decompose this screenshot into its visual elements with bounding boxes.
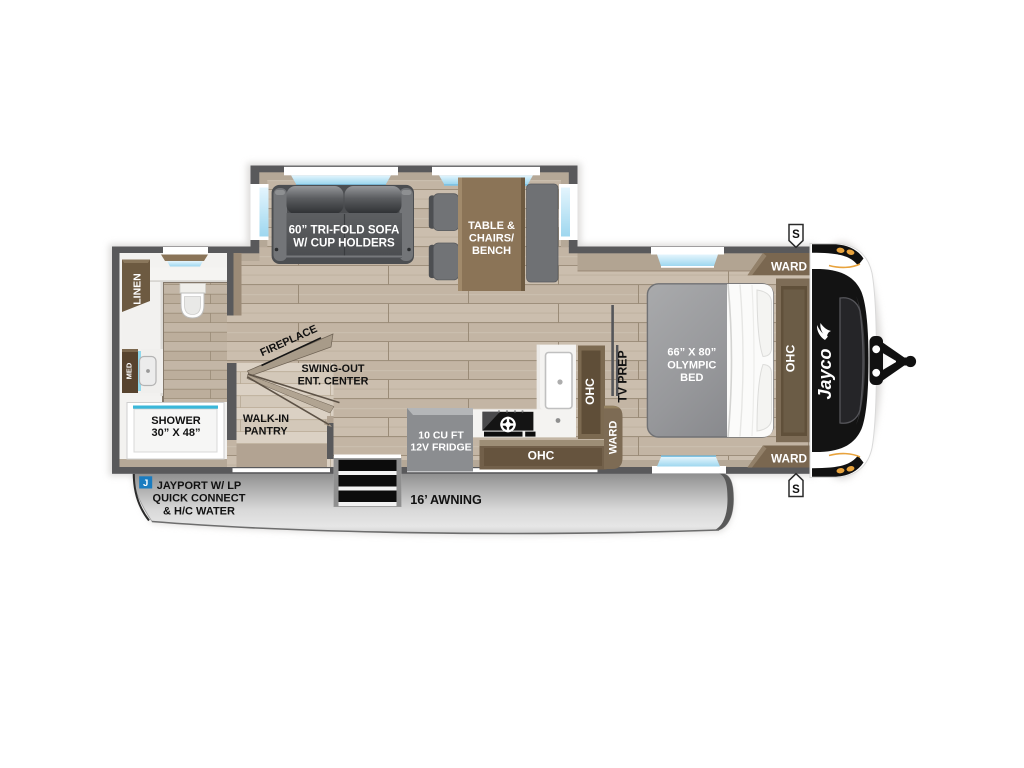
svg-text:PANTRY: PANTRY bbox=[244, 426, 288, 438]
svg-text:60” TRI-FOLD SOFA: 60” TRI-FOLD SOFA bbox=[289, 224, 400, 237]
svg-text:TABLE &: TABLE & bbox=[468, 220, 515, 232]
svg-text:30” X 48”: 30” X 48” bbox=[152, 427, 201, 439]
svg-text:OHC: OHC bbox=[528, 449, 555, 463]
svg-text:S: S bbox=[792, 229, 800, 241]
svg-text:Jayco: Jayco bbox=[815, 348, 835, 399]
svg-text:SHOWER: SHOWER bbox=[151, 415, 201, 427]
svg-text:LINEN: LINEN bbox=[132, 273, 144, 305]
svg-text:BED: BED bbox=[680, 372, 703, 384]
svg-text:CHAIRS/: CHAIRS/ bbox=[469, 233, 514, 245]
svg-text:ENT. CENTER: ENT. CENTER bbox=[298, 376, 369, 388]
svg-text:SWING-OUT: SWING-OUT bbox=[302, 363, 365, 375]
svg-text:W/ CUP HOLDERS: W/ CUP HOLDERS bbox=[293, 237, 395, 250]
svg-text:MED: MED bbox=[125, 362, 134, 379]
svg-text:WARD: WARD bbox=[771, 260, 808, 274]
svg-text:12V FRIDGE: 12V FRIDGE bbox=[410, 442, 471, 454]
svg-text:16’ AWNING: 16’ AWNING bbox=[410, 493, 482, 507]
svg-text:BENCH: BENCH bbox=[472, 245, 511, 257]
svg-text:OLYMPIC: OLYMPIC bbox=[667, 359, 716, 371]
svg-text:QUICK CONNECT: QUICK CONNECT bbox=[153, 493, 246, 505]
svg-text:OHC: OHC bbox=[583, 378, 597, 405]
svg-text:WARD: WARD bbox=[608, 421, 620, 455]
svg-text:TV PREP: TV PREP bbox=[616, 350, 630, 402]
svg-text:66” X 80”: 66” X 80” bbox=[667, 347, 716, 359]
svg-text:10 CU FT: 10 CU FT bbox=[418, 430, 464, 442]
svg-text:OHC: OHC bbox=[784, 345, 798, 373]
svg-text:& H/C WATER: & H/C WATER bbox=[163, 506, 235, 518]
svg-text:WARD: WARD bbox=[771, 452, 808, 466]
svg-text:J: J bbox=[143, 478, 148, 489]
svg-text:JAYPORT W/ LP: JAYPORT W/ LP bbox=[157, 480, 242, 492]
svg-text:WALK-IN: WALK-IN bbox=[243, 413, 289, 425]
svg-text:S: S bbox=[792, 484, 800, 496]
